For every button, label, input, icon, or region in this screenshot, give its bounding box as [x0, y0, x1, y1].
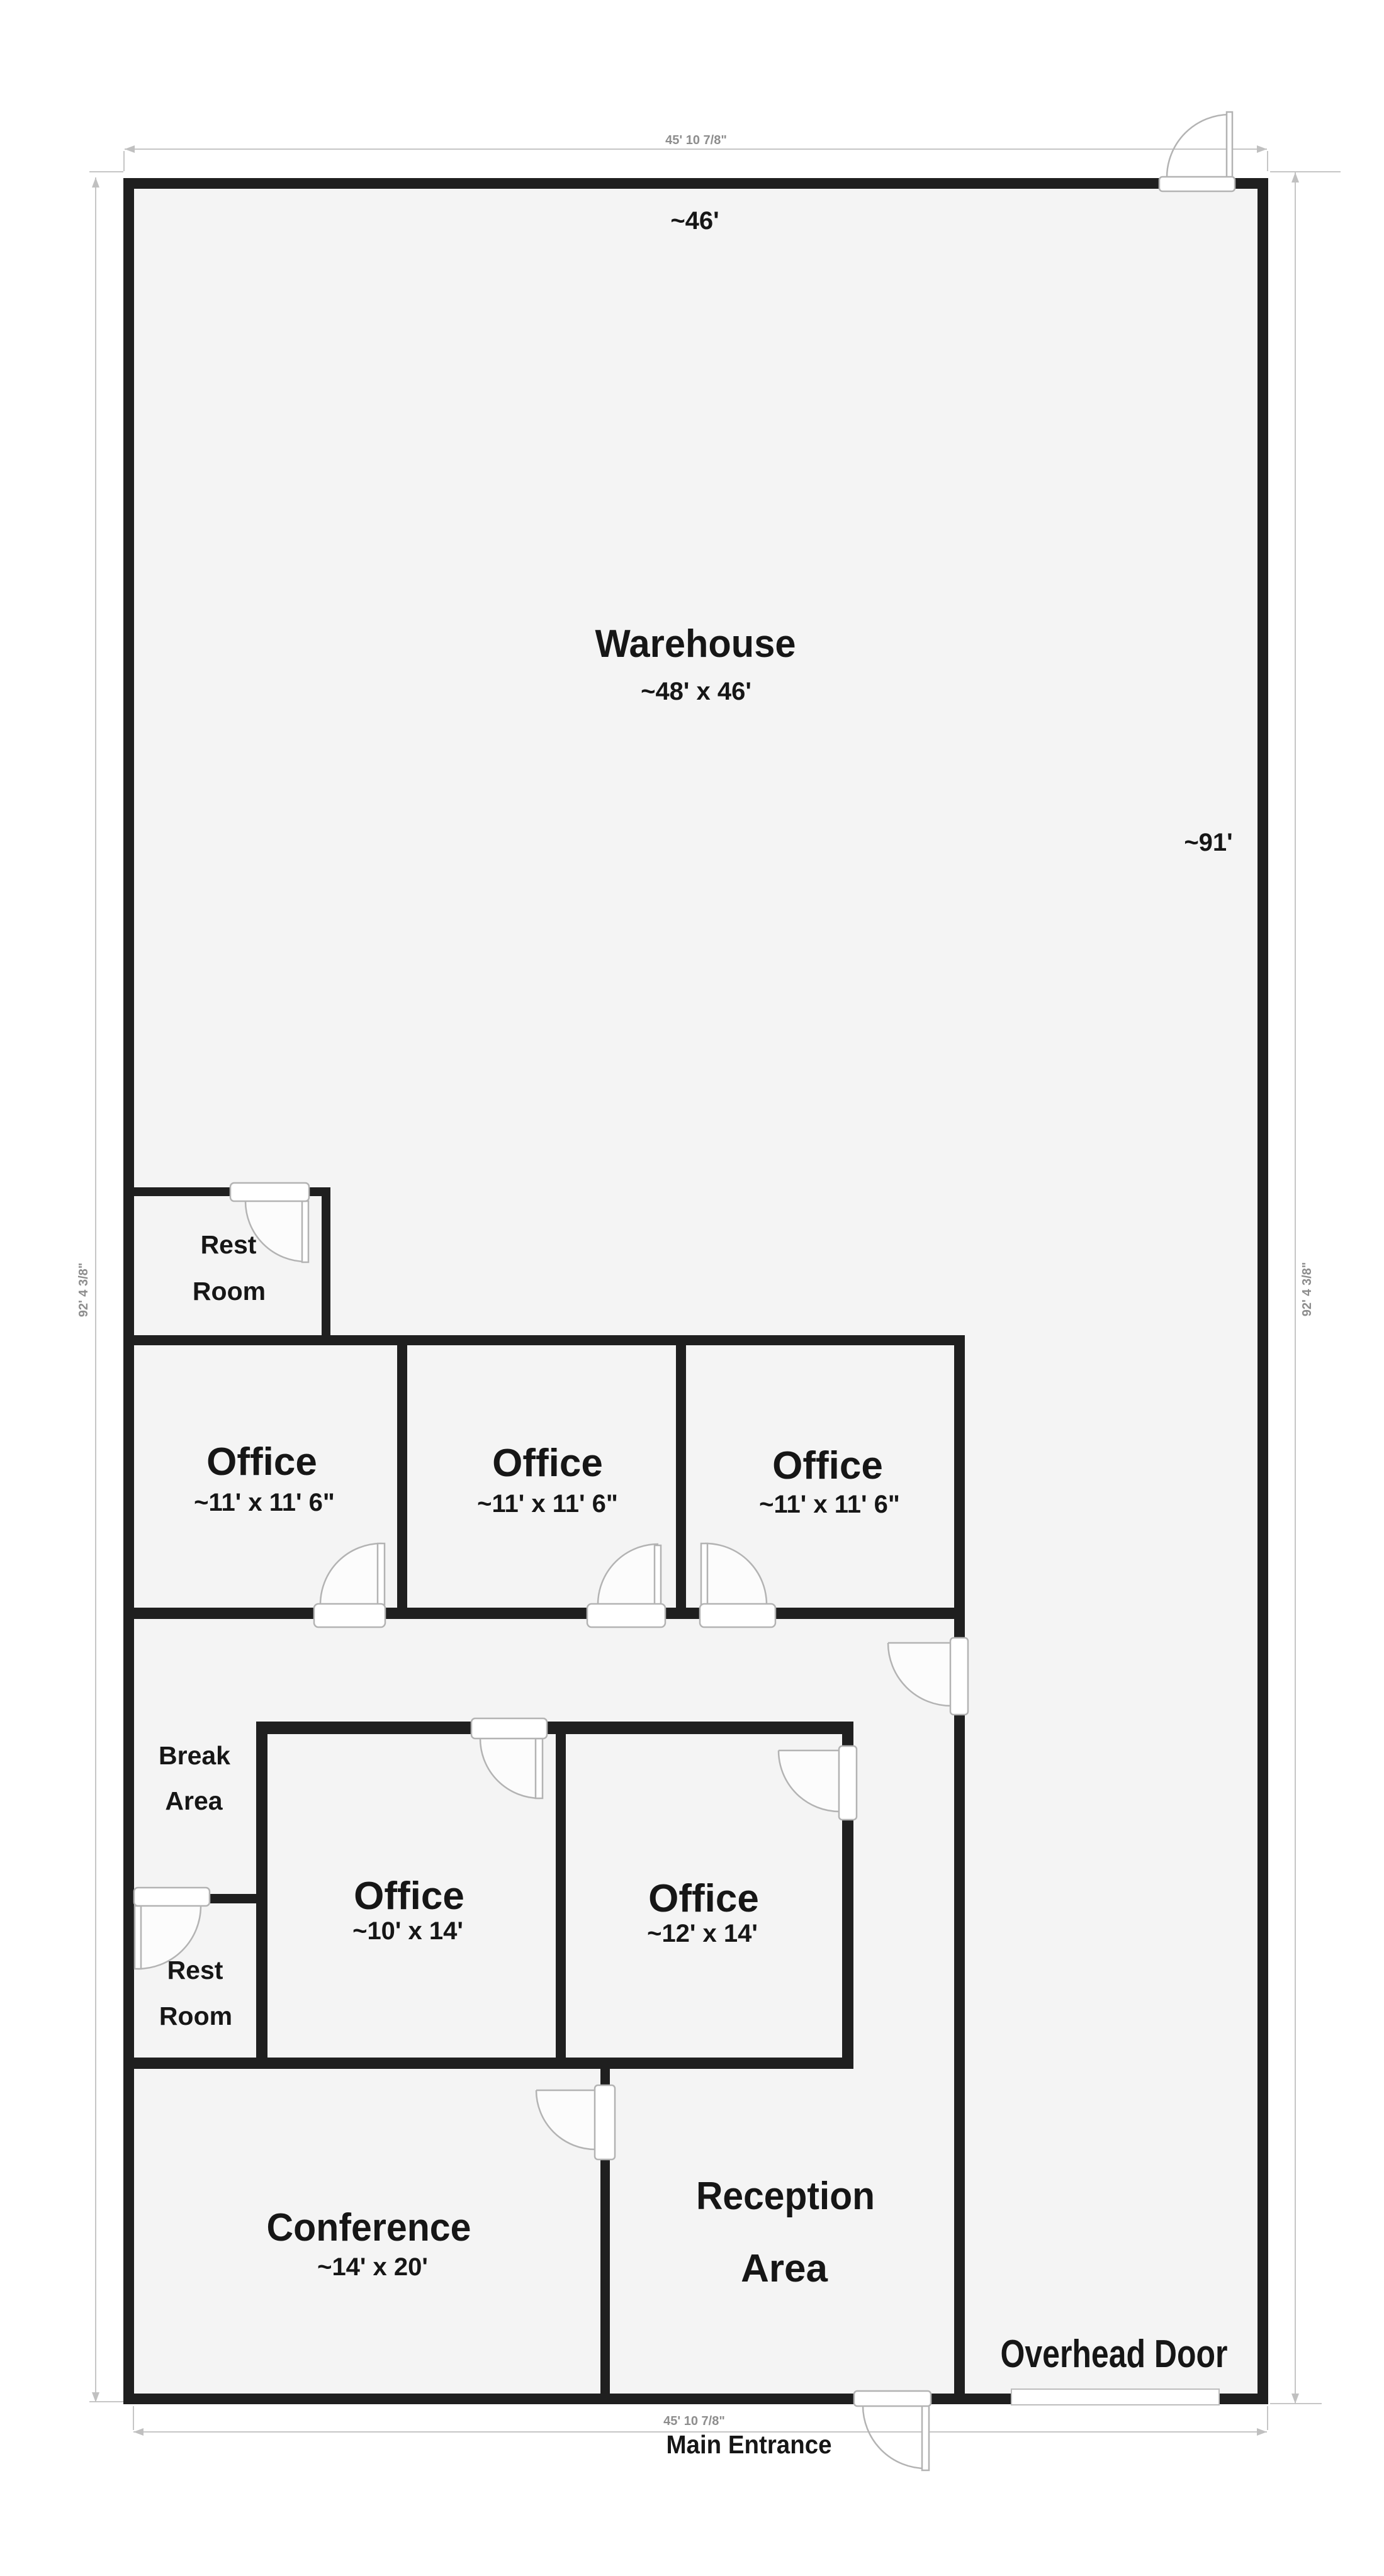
- svg-text:~11' x 11' 6": ~11' x 11' 6": [194, 1489, 335, 1516]
- svg-text:~14' x 20': ~14' x 20': [317, 2253, 428, 2281]
- svg-text:~48' x 46': ~48' x 46': [641, 678, 751, 705]
- svg-text:~11' x 11' 6": ~11' x 11' 6": [477, 1490, 618, 1518]
- svg-text:Office: Office: [206, 1440, 317, 1484]
- svg-text:Room: Room: [159, 2002, 232, 2030]
- svg-text:Rest: Rest: [167, 1956, 223, 1985]
- svg-text:Break: Break: [159, 1741, 230, 1770]
- svg-text:~12' x 14': ~12' x 14': [647, 1920, 758, 1947]
- svg-text:45' 10 7/8": 45' 10 7/8": [663, 2414, 725, 2428]
- svg-text:45' 10 7/8": 45' 10 7/8": [665, 133, 727, 147]
- svg-text:Reception: Reception: [696, 2175, 875, 2218]
- svg-text:92' 4 3/8": 92' 4 3/8": [77, 1263, 91, 1318]
- svg-text:~11' x 11' 6": ~11' x 11' 6": [759, 1491, 900, 1518]
- svg-text:Conference: Conference: [267, 2206, 471, 2249]
- svg-text:Office: Office: [492, 1442, 603, 1485]
- svg-text:Area: Area: [165, 1786, 223, 1815]
- svg-text:Warehouse: Warehouse: [595, 622, 796, 666]
- svg-text:Area: Area: [741, 2247, 828, 2290]
- svg-text:~46': ~46': [670, 207, 719, 235]
- svg-text:Rest: Rest: [201, 1230, 257, 1259]
- svg-text:Overhead Door: Overhead Door: [1001, 2332, 1228, 2376]
- svg-text:92' 4 3/8": 92' 4 3/8": [1300, 1262, 1314, 1317]
- svg-text:Room: Room: [193, 1277, 266, 1306]
- svg-text:Office: Office: [354, 1874, 464, 1918]
- svg-text:Office: Office: [772, 1444, 883, 1487]
- svg-text:~10' x 14': ~10' x 14': [352, 1917, 463, 1945]
- svg-text:Office: Office: [648, 1877, 759, 1920]
- svg-text:Main Entrance: Main Entrance: [667, 2430, 832, 2459]
- svg-text:~91': ~91': [1184, 829, 1232, 856]
